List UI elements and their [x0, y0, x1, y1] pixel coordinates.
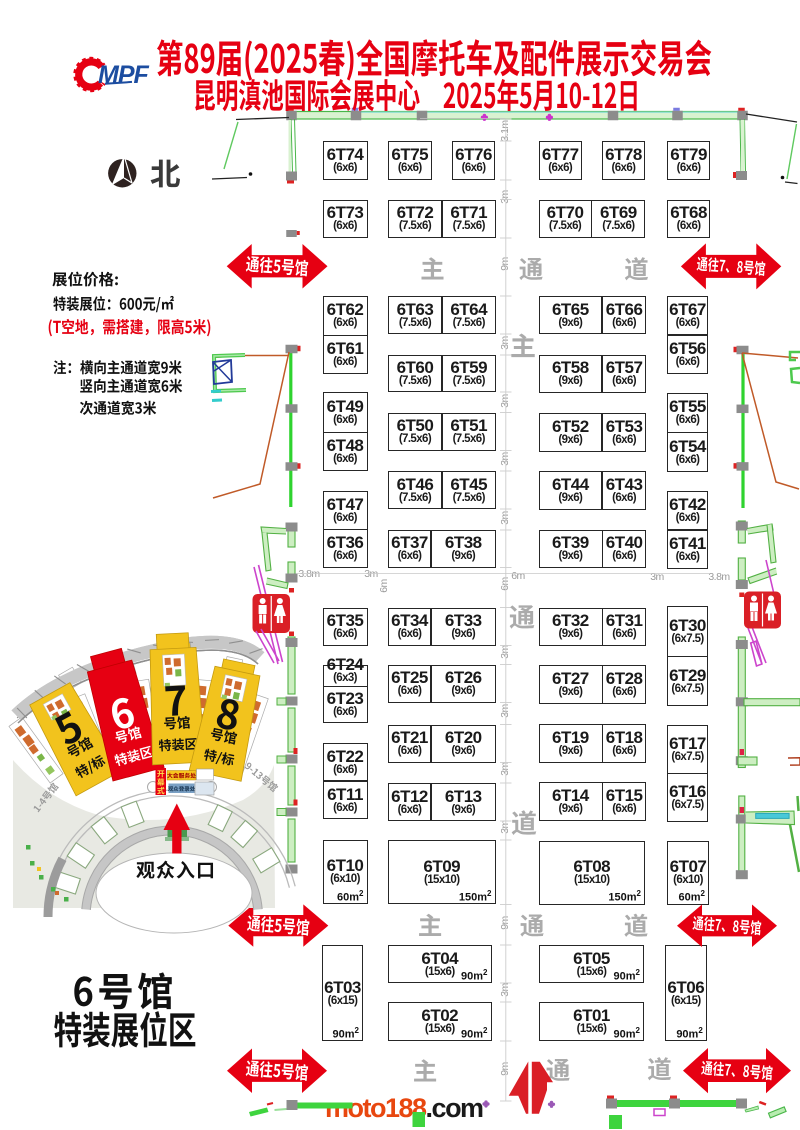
svg-text:MPF: MPF: [98, 61, 150, 89]
